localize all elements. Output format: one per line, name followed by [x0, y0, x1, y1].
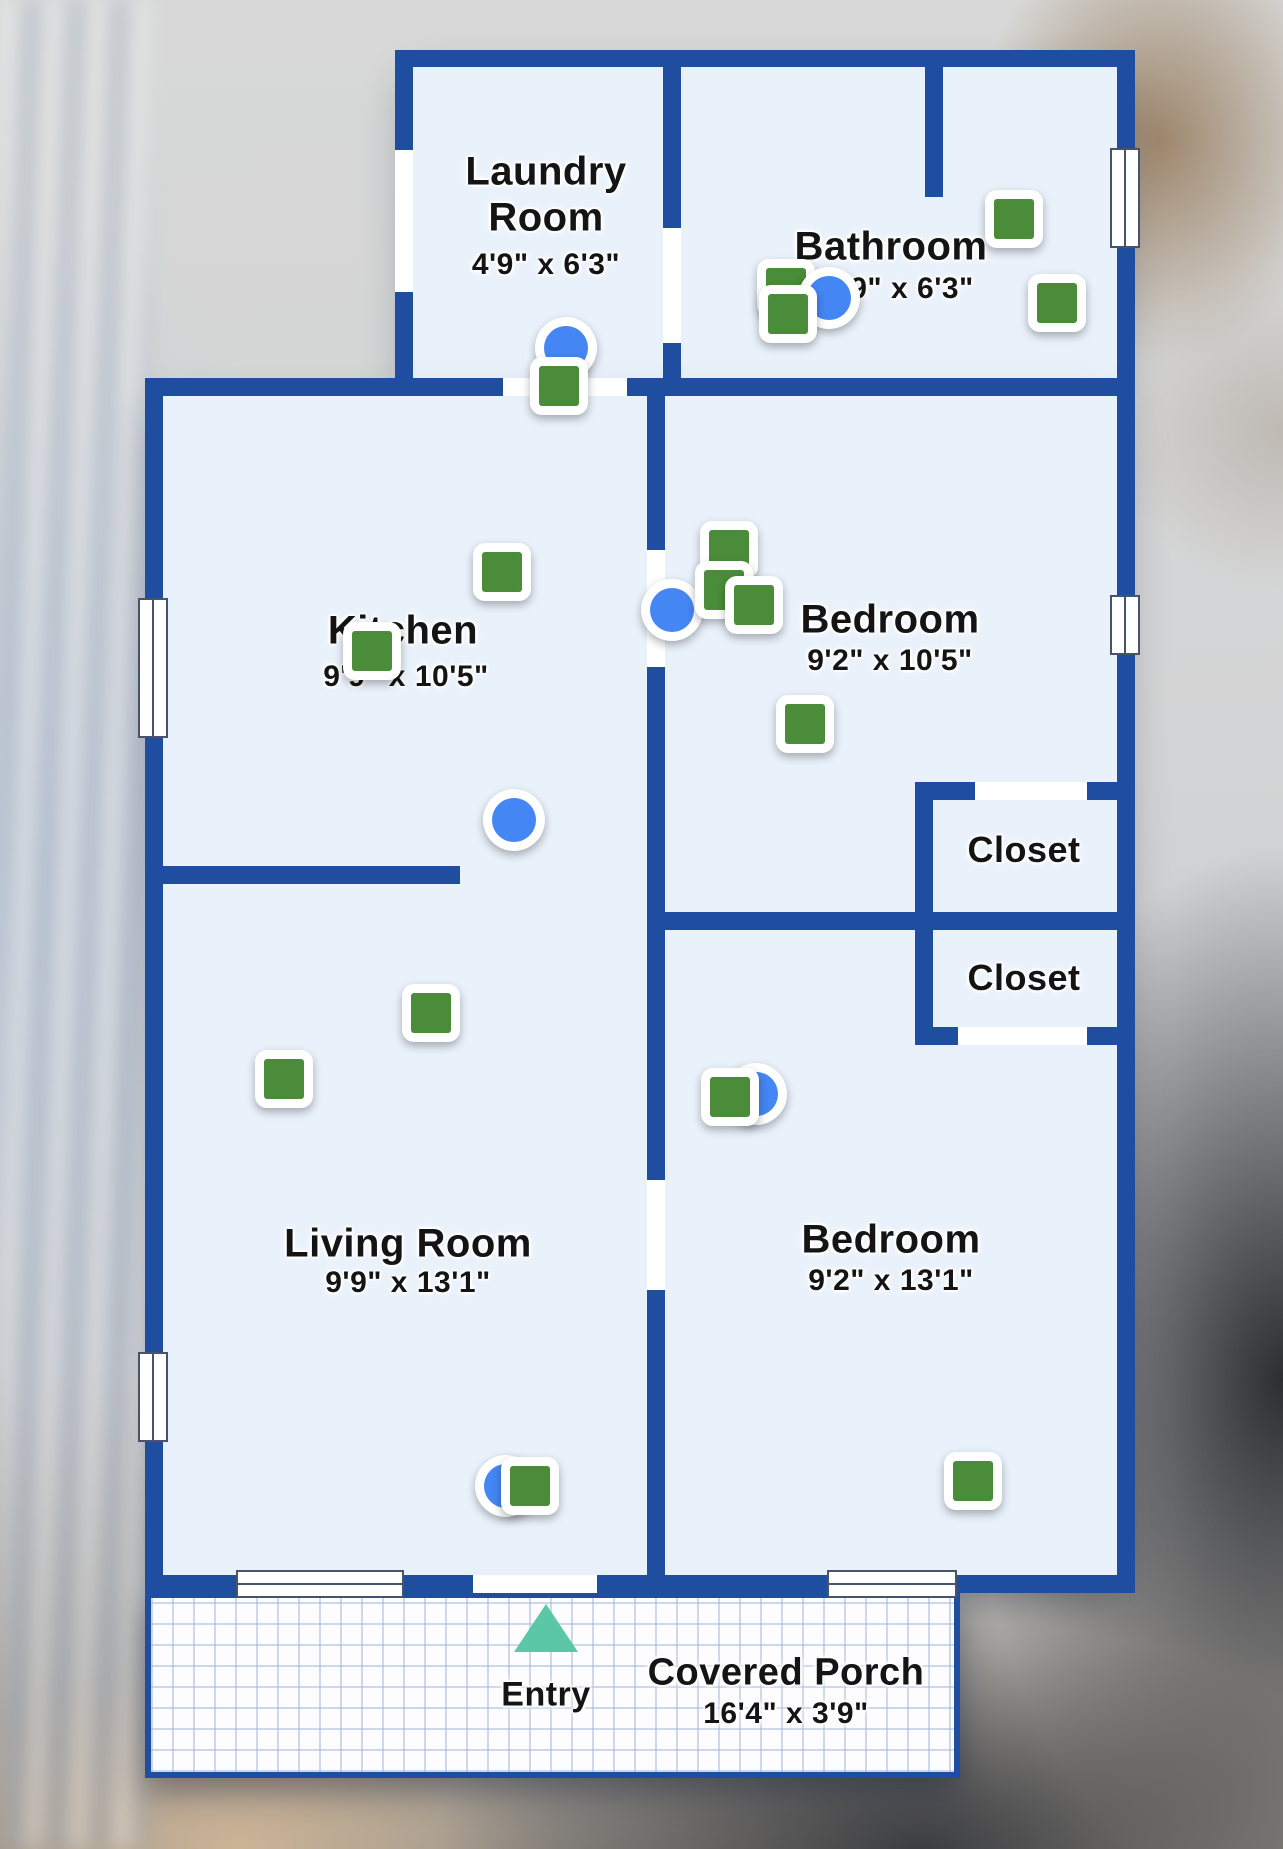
- wall: [395, 67, 413, 150]
- photo-marker[interactable]: [473, 543, 531, 601]
- wall: [163, 866, 460, 884]
- room-label-laundry-room: 4'9" x 6'3": [472, 248, 620, 282]
- photo-marker[interactable]: [776, 695, 834, 753]
- photo-marker-icon: [710, 1077, 750, 1117]
- photo-marker[interactable]: [255, 1050, 313, 1108]
- photo-marker-icon: [1037, 283, 1077, 323]
- room-label-bathroom: 9" x 6'3": [850, 272, 974, 306]
- room-label-bathroom: Bathroom: [795, 225, 988, 270]
- room-label-living-room: Living Room: [284, 1222, 532, 1267]
- door-opening: [663, 228, 681, 343]
- room-label-closet: Closet: [967, 957, 1080, 999]
- photo-marker[interactable]: [1028, 274, 1086, 332]
- photo-marker-icon: [482, 552, 522, 592]
- window-symbol: [236, 1570, 404, 1598]
- window-pane-line: [238, 1583, 402, 1585]
- room-label-entry: Entry: [501, 1676, 590, 1715]
- window-pane-line: [1124, 597, 1126, 653]
- wall: [647, 396, 665, 550]
- window-symbol: [138, 598, 168, 738]
- photo-marker-icon: [768, 294, 808, 334]
- room-label-bedroom: 9'2" x 13'1": [808, 1264, 974, 1298]
- photo-marker[interactable]: [701, 1068, 759, 1126]
- wall: [663, 67, 681, 228]
- room-label-laundry-room: Room: [488, 196, 603, 241]
- door-opening: [473, 1575, 597, 1593]
- photo-marker[interactable]: [343, 622, 401, 680]
- room-label-closet: Closet: [967, 829, 1080, 871]
- window-pane-line: [152, 600, 154, 736]
- room-label-bedroom: 9'2" x 10'5": [807, 644, 973, 678]
- wall: [627, 378, 1135, 396]
- entry-direction-arrow-icon: [514, 1604, 578, 1652]
- photo-marker[interactable]: [530, 357, 588, 415]
- photo-marker-icon: [352, 631, 392, 671]
- photo-marker-icon: [953, 1461, 993, 1501]
- photo-marker[interactable]: [759, 285, 817, 343]
- photo-marker-icon: [539, 366, 579, 406]
- photo-marker-icon: [411, 993, 451, 1033]
- wall: [647, 1290, 665, 1593]
- room-label-covered-porch: Covered Porch: [648, 1652, 925, 1695]
- window-pane-line: [152, 1354, 154, 1440]
- floorplan-viewer: LaundryRoom4'9" x 6'3"Bathroom9" x 6'3"K…: [0, 0, 1283, 1849]
- window-pane-line: [1124, 150, 1126, 246]
- photo-marker-icon: [734, 585, 774, 625]
- photo-marker-icon: [264, 1059, 304, 1099]
- photo-marker[interactable]: [501, 1457, 559, 1515]
- photo-marker[interactable]: [985, 190, 1043, 248]
- door-opening: [647, 1180, 665, 1290]
- door-opening: [975, 782, 1087, 800]
- window-symbol: [1110, 595, 1140, 655]
- wall: [145, 378, 503, 396]
- room-label-living-room: 9'9" x 13'1": [325, 1266, 491, 1300]
- wall: [915, 800, 933, 912]
- room-label-laundry-room: Laundry: [465, 150, 626, 195]
- photo-marker-icon: [994, 199, 1034, 239]
- window-pane-line: [829, 1583, 955, 1585]
- curtain-blur-area: [0, 0, 150, 1849]
- camera-marker-icon: [492, 798, 536, 842]
- wall: [647, 912, 1135, 930]
- photo-marker[interactable]: [725, 576, 783, 634]
- wall: [925, 67, 943, 197]
- panorama-camera-marker[interactable]: [641, 579, 703, 641]
- wall: [647, 667, 665, 884]
- photo-marker-icon: [785, 704, 825, 744]
- photo-marker[interactable]: [944, 1452, 1002, 1510]
- photo-marker[interactable]: [402, 984, 460, 1042]
- room-label-bedroom: Bedroom: [801, 1218, 980, 1263]
- window-symbol: [138, 1352, 168, 1442]
- room-label-covered-porch: 16'4" x 3'9": [703, 1697, 869, 1731]
- wall: [1117, 50, 1135, 1593]
- wall: [395, 50, 1135, 67]
- camera-marker-icon: [650, 588, 694, 632]
- window-symbol: [1110, 148, 1140, 248]
- photo-marker-icon: [510, 1466, 550, 1506]
- panorama-camera-marker[interactable]: [483, 789, 545, 851]
- door-opening: [395, 150, 413, 292]
- door-opening: [958, 1027, 1087, 1045]
- window-symbol: [827, 1570, 957, 1598]
- room-label-bedroom: Bedroom: [800, 598, 979, 643]
